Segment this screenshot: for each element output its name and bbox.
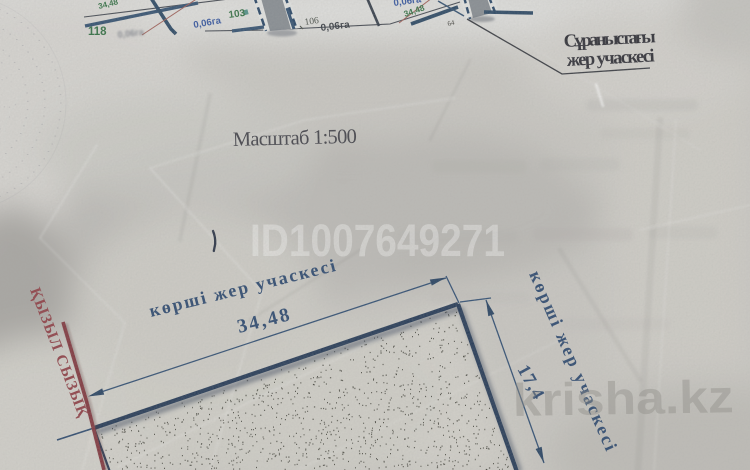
svg-text:krisha.kz: krisha.kz [512,370,734,426]
